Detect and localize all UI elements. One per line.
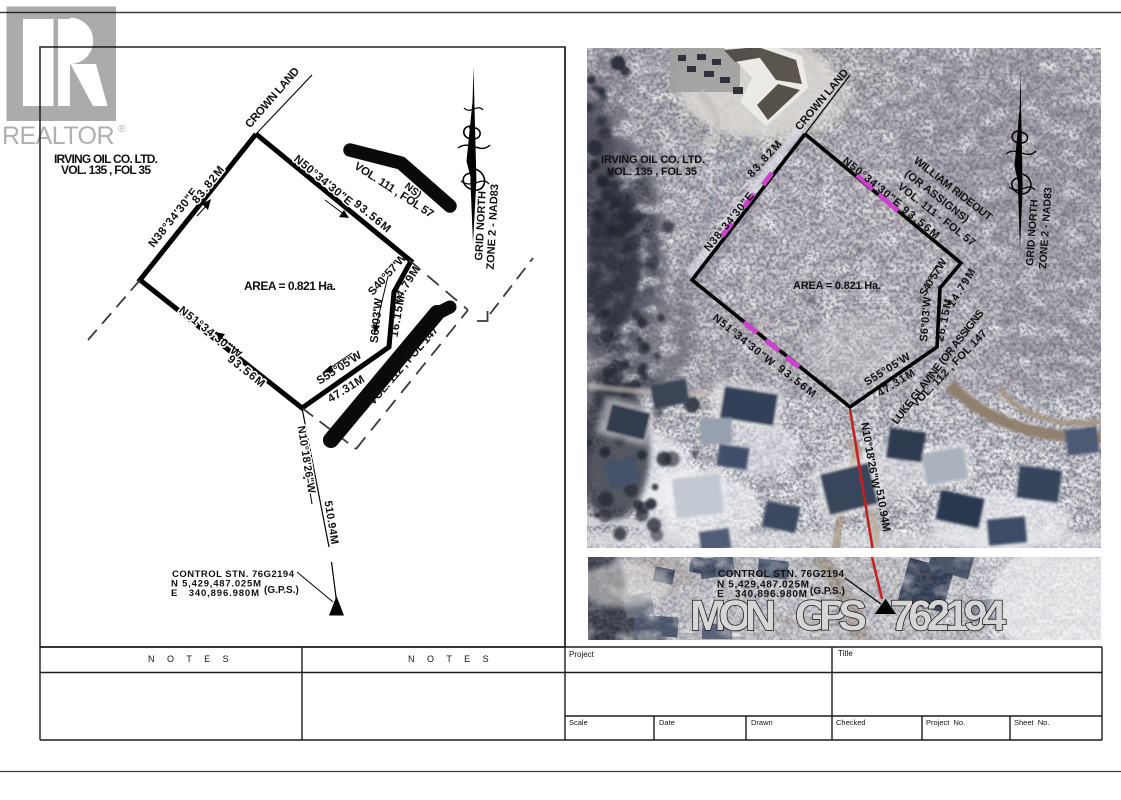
svg-text:Project: Project <box>569 650 595 659</box>
svg-text:GPS: GPS <box>795 592 867 640</box>
svg-text:E 340,896.980M: E 340,896.980M <box>171 588 259 599</box>
svg-text:Sheet No.: Sheet No. <box>1014 718 1049 727</box>
svg-text:762194: 762194 <box>890 592 1006 640</box>
svg-text:IRVING OIL CO. LTD.: IRVING OIL CO. LTD. <box>601 154 705 166</box>
svg-text:REALTOR: REALTOR <box>2 122 116 150</box>
svg-text:Project No.: Project No. <box>926 718 965 727</box>
svg-text:CONTROL STN. 76G2194: CONTROL STN. 76G2194 <box>718 569 844 580</box>
svg-text:Scale: Scale <box>569 718 588 727</box>
svg-text:Title: Title <box>838 649 853 658</box>
svg-text:AREA = 0.821 Ha.: AREA = 0.821 Ha. <box>793 280 881 292</box>
svg-text:Date: Date <box>659 718 675 727</box>
svg-text:®: ® <box>118 124 126 135</box>
svg-text:MON: MON <box>690 592 776 640</box>
svg-text:N O T E S: N O T E S <box>408 654 494 664</box>
svg-text:Drawn: Drawn <box>751 718 773 727</box>
svg-text:VOL. 135 , FOL 35: VOL. 135 , FOL 35 <box>61 163 151 177</box>
svg-text:Checked: Checked <box>836 718 866 727</box>
svg-text:(G.P.S.): (G.P.S.) <box>264 585 299 596</box>
svg-text:VOL. 135 , FOL 35: VOL. 135 , FOL 35 <box>607 166 697 178</box>
svg-text:N O T E S: N O T E S <box>148 654 234 664</box>
svg-text:AREA = 0.821 Ha.: AREA = 0.821 Ha. <box>244 279 336 293</box>
